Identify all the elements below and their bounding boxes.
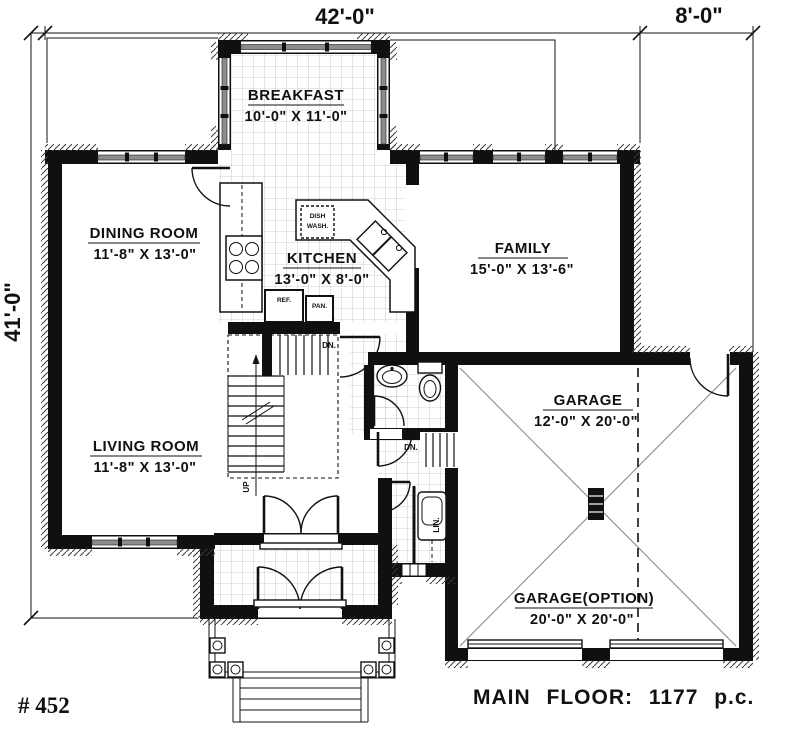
room-size-breakfast: 10'-0" X 11'-0" (244, 109, 347, 125)
plan-number: # 452 (18, 693, 70, 718)
floor-title: MAIN FLOOR: 1177 p.c. (473, 686, 754, 709)
toilet-icon (418, 362, 442, 401)
stairs-down-basement-label: DN. (322, 341, 336, 350)
room-label-breakfast: BREAKFAST (248, 87, 344, 104)
room-size-dining: 11'-8" X 13'-0" (93, 247, 196, 263)
dishwasher-icon: DISH WASH. (301, 206, 334, 238)
stairs-up-label: UP (242, 481, 251, 493)
linen-label: LIN. (432, 517, 441, 532)
floor-plan-drawing: 42'-0" 8'-0" 41'-0" (0, 0, 800, 729)
dimension-left-height: 41'-0" (0, 282, 25, 342)
side-step (402, 564, 426, 576)
sink-icon (377, 365, 407, 387)
porch-layer (209, 619, 395, 722)
sheet-annotations: # 452 MAIN FLOOR: 1177 p.c. (18, 686, 754, 718)
pantry-label: PAN. (312, 303, 327, 310)
room-size-garage-option: 20'-0" X 20'-0" (530, 612, 634, 628)
room-label-kitchen: KITCHEN (287, 250, 357, 267)
garage-entry-steps (420, 432, 458, 468)
entry-threshold (254, 600, 346, 607)
room-size-kitchen: 13'-0" X 8'-0" (274, 272, 369, 288)
dishwasher-label-1: DISH (310, 213, 326, 220)
refrigerator-icon: REF. (265, 290, 303, 322)
room-size-garage: 12'-0" X 20'-0" (534, 414, 638, 430)
room-label-living: LIVING ROOM (93, 438, 199, 455)
porch-columns (210, 638, 394, 677)
room-label-family: FAMILY (495, 240, 552, 257)
floor-plan-sheet: 42'-0" 8'-0" 41'-0" (0, 0, 800, 729)
dishwasher-label-2: WASH. (307, 223, 329, 230)
dimension-top-right-width: 8'-0" (675, 3, 722, 28)
front-steps (233, 678, 368, 722)
stove-icon (226, 236, 262, 280)
room-label-dining: DINING ROOM (90, 225, 199, 242)
room-size-family: 15'-0" X 13'-6" (470, 262, 574, 278)
room-size-living: 11'-8" X 13'-0" (93, 460, 196, 476)
room-label-garage: GARAGE (554, 392, 623, 409)
pantry-icon: PAN. (306, 296, 333, 322)
room-label-garage-option: GARAGE(OPTION) (514, 590, 654, 607)
refrigerator-label: REF. (277, 297, 291, 304)
dimension-top-width: 42'-0" (315, 4, 375, 29)
